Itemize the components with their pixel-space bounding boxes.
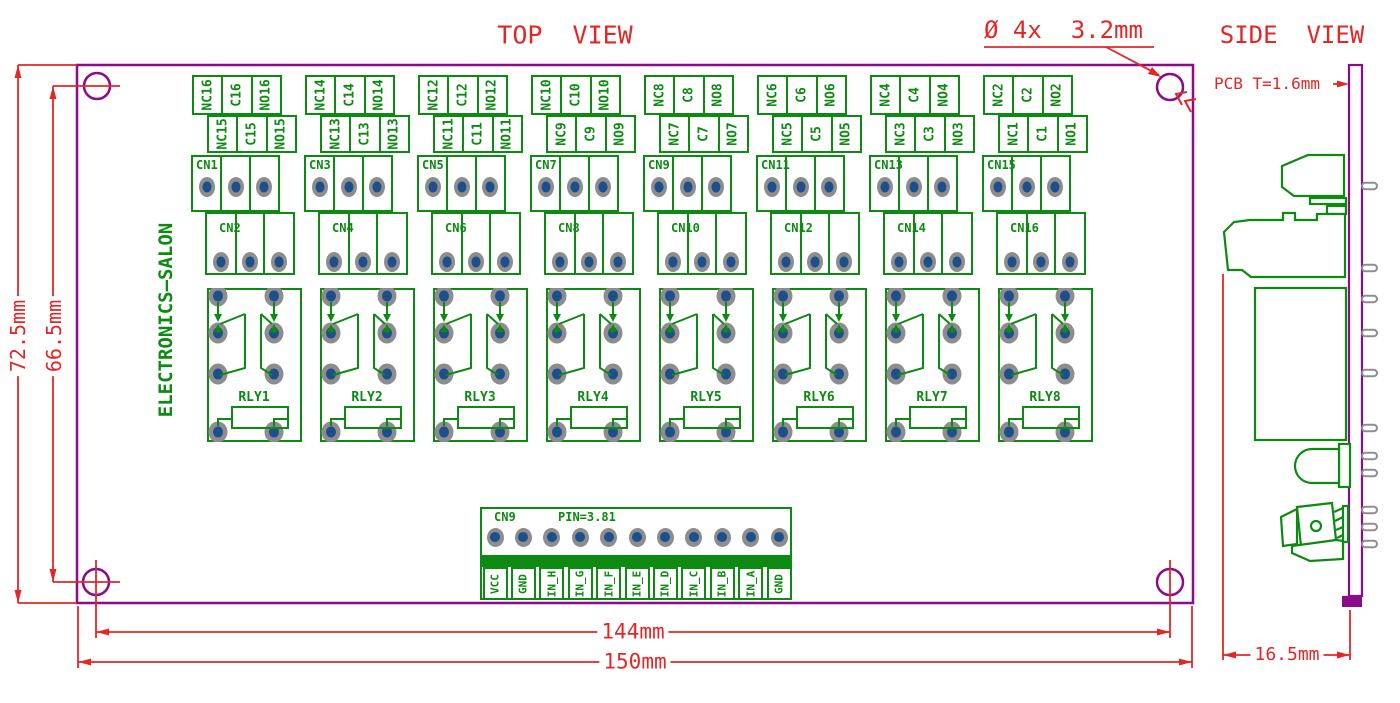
- connector-label: CN11: [761, 159, 790, 171]
- relay-label: RLY6: [803, 390, 834, 405]
- solder-pad: [581, 252, 597, 272]
- input-pin-cell: GND: [767, 567, 792, 600]
- terminal-cell: C1: [1027, 117, 1056, 151]
- pad-hole: [1022, 182, 1031, 193]
- terminal-label: NC11: [442, 118, 455, 149]
- solder-pad: [341, 177, 357, 197]
- terminal-cell: NO2: [1042, 77, 1071, 113]
- connector-block-lower: CN4: [318, 212, 408, 275]
- terminal-cell: NC1: [1000, 117, 1027, 151]
- terminal-label: NO4: [938, 83, 951, 106]
- dimension-side-depth: 16.5mm: [1250, 646, 1323, 664]
- solder-pad: [1019, 177, 1035, 197]
- terminal-label: NO8: [712, 83, 725, 106]
- input-pin-label: IN_E: [632, 570, 643, 597]
- terminal-label: C6: [795, 87, 808, 103]
- pad-hole: [547, 532, 557, 542]
- pad-hole: [500, 257, 509, 268]
- terminal-cell: NC13: [322, 117, 349, 151]
- terminal-cell: C11: [462, 117, 491, 151]
- pad-hole: [669, 257, 678, 268]
- connector-label: CN15: [987, 159, 1016, 171]
- input-pin-pad: [629, 528, 646, 547]
- terminal-cell: NO13: [379, 117, 408, 151]
- input-pin-label: VCC: [490, 574, 501, 594]
- cell-divider: [814, 157, 816, 210]
- terminal-row-lower: NC9C9NO9: [546, 115, 636, 153]
- solder-pad: [694, 252, 710, 272]
- side-terminal-bar: [1310, 198, 1346, 204]
- solder-pad: [213, 252, 229, 272]
- terminal-label: C5: [810, 126, 823, 142]
- terminal-cell: C8: [673, 77, 702, 113]
- terminal-cell: NC11: [435, 117, 462, 151]
- input-pin-pad: [600, 528, 617, 547]
- terminal-cell: NO7: [718, 117, 747, 151]
- terminal-label: NC2: [992, 83, 1005, 106]
- solder-pad: [949, 252, 965, 272]
- terminal-label: NC13: [329, 118, 342, 149]
- terminal-row-lower: NC15C15NO15: [207, 115, 297, 153]
- terminal-label: NO16: [260, 79, 273, 110]
- cell-divider: [475, 157, 477, 210]
- relay-footprint-svg: RLY8: [998, 288, 1093, 442]
- solder-pad: [1047, 177, 1063, 197]
- pad-hole: [909, 182, 918, 193]
- solder-pad: [482, 177, 498, 197]
- terminal-cell: NO1: [1057, 117, 1086, 151]
- input-pin-pad: [742, 528, 759, 547]
- terminal-label: C9: [584, 126, 597, 142]
- pad-hole: [768, 182, 777, 193]
- solder-pad: [256, 177, 272, 197]
- connector-label: CN14: [897, 222, 926, 234]
- terminal-label: NO9: [614, 122, 627, 145]
- cell-divider: [672, 157, 674, 210]
- input-pin-cell: IN_D: [653, 567, 678, 600]
- pad-hole: [604, 532, 614, 542]
- pad-hole: [472, 257, 481, 268]
- connector-block-upper: CN5: [417, 155, 506, 212]
- cell-divider: [362, 157, 364, 210]
- cell-divider: [263, 214, 265, 273]
- side-terminal-step: [1327, 206, 1346, 214]
- pad-hole: [598, 182, 607, 193]
- solder-pad: [439, 252, 455, 272]
- input-pin-label: IN_C: [688, 570, 699, 597]
- connector-block-upper: CN15: [982, 155, 1071, 212]
- cell-divider: [249, 157, 251, 210]
- terminal-cell: NC16: [194, 77, 221, 113]
- pad-hole: [839, 257, 848, 268]
- side-opto-latch: [1281, 509, 1297, 546]
- terminal-label: C2: [1021, 87, 1034, 103]
- terminal-cell: NC8: [646, 77, 673, 113]
- terminal-label: NC7: [668, 122, 681, 145]
- pad-hole: [231, 182, 240, 193]
- input-pin-label: IN_D: [660, 570, 671, 597]
- terminal-label: C7: [697, 126, 710, 142]
- input-pin-label: GND: [518, 574, 529, 594]
- relay-footprint-svg: RLY1: [207, 288, 302, 442]
- terminal-cell: C6: [786, 77, 815, 113]
- solder-pad: [793, 177, 809, 197]
- terminal-label: NC14: [314, 79, 327, 110]
- relay-footprint-svg: RLY2: [320, 288, 415, 442]
- pad-hole: [683, 182, 692, 193]
- input-pin-cell: IN_B: [710, 567, 735, 600]
- connector-block-lower: CN8: [544, 212, 634, 275]
- pad-hole: [259, 182, 268, 193]
- terminal-cell: NO5: [831, 117, 860, 151]
- cell-divider: [220, 157, 222, 210]
- relay-label: RLY1: [238, 390, 269, 405]
- terminal-cell: NC6: [759, 77, 786, 113]
- cell-divider: [446, 157, 448, 210]
- terminal-row-lower: NC13C13NO13: [320, 115, 410, 153]
- terminal-label: C15: [245, 122, 258, 145]
- terminal-cell: C7: [688, 117, 717, 151]
- terminal-cell: NC9: [548, 117, 575, 151]
- connector-block-upper: CN9: [643, 155, 732, 212]
- connector-block-lower: CN6: [431, 212, 521, 275]
- terminal-label: NO13: [388, 118, 401, 149]
- pad-hole: [518, 532, 528, 542]
- relay-label: RLY4: [577, 390, 608, 405]
- connector-block-upper: CN11: [756, 155, 845, 212]
- side-opto-pinbar: [1343, 506, 1348, 542]
- relay-footprint-svg: RLY7: [885, 288, 980, 442]
- pad-hole: [994, 182, 1003, 193]
- pad-hole: [570, 182, 579, 193]
- terminal-cell: NO4: [929, 77, 958, 113]
- solder-pad: [312, 177, 328, 197]
- pad-hole: [490, 532, 500, 542]
- relay-label: RLY3: [464, 390, 495, 405]
- connector-label: CN3: [309, 159, 331, 171]
- pad-hole: [660, 532, 670, 542]
- pad-hole: [924, 257, 933, 268]
- terminal-cell: NO11: [492, 117, 521, 151]
- connector-label: CN12: [784, 222, 813, 234]
- relay-footprint: RLY3: [433, 288, 528, 442]
- relay-footprint: RLY5: [659, 288, 754, 442]
- pad-hole: [203, 182, 212, 193]
- pad-hole: [443, 257, 452, 268]
- dimension-board-width: 150mm: [599, 652, 670, 673]
- pad-hole: [689, 532, 699, 542]
- input-pin-pad: [771, 528, 788, 547]
- pad-hole: [655, 182, 664, 193]
- pad-hole: [372, 182, 381, 193]
- cell-divider: [1040, 157, 1042, 210]
- terminal-row-lower: NC5C5NO5: [772, 115, 862, 153]
- terminal-cell: C5: [801, 117, 830, 151]
- solder-pad: [990, 177, 1006, 197]
- cell-divider: [701, 157, 703, 210]
- terminal-label: NO7: [727, 122, 740, 145]
- dimension-board-height: 72.5mm: [8, 296, 28, 376]
- input-pin-label: IN_B: [717, 570, 728, 597]
- terminal-cell: NO8: [703, 77, 732, 113]
- terminal-label: C14: [343, 83, 356, 106]
- terminal-cell: C9: [575, 117, 604, 151]
- relay-label: RLY8: [1029, 390, 1060, 405]
- cell-divider: [828, 214, 830, 273]
- pad-hole: [359, 257, 368, 268]
- pcb-thickness-note: PCB T=1.6mm: [1214, 76, 1320, 92]
- pcb-dimensional-drawing: TOP VIEW SIDE VIEW Ø 4x 3.2mm PCB T=1.6m…: [0, 0, 1400, 703]
- terminal-cell: NO12: [477, 77, 506, 113]
- solder-pad: [468, 252, 484, 272]
- pad-hole: [952, 257, 961, 268]
- pad-hole: [457, 182, 466, 193]
- pad-hole: [316, 182, 325, 193]
- side-led-flange: [1339, 444, 1350, 487]
- cell-divider: [927, 157, 929, 210]
- terminal-label: NC10: [540, 79, 553, 110]
- connector-block-lower: CN12: [770, 212, 860, 275]
- terminal-label: NO5: [840, 122, 853, 145]
- pad-hole: [717, 532, 727, 542]
- relay-footprint: RLY1: [207, 288, 302, 442]
- input-connector: CN9PIN=3.81VCCGNDIN_HIN_GIN_FIN_EIN_DIN_…: [480, 507, 792, 600]
- pad-hole: [585, 257, 594, 268]
- relay-label: RLY2: [351, 390, 382, 405]
- connector-label: CN16: [1010, 222, 1039, 234]
- terminal-row-lower: NC1C1NO1: [998, 115, 1088, 153]
- pad-hole: [824, 182, 833, 193]
- terminal-label: NO1: [1066, 122, 1079, 145]
- cell-divider: [588, 157, 590, 210]
- solder-pad: [355, 252, 371, 272]
- terminal-cell: NC7: [661, 117, 688, 151]
- solder-pad: [497, 252, 513, 272]
- pad-hole: [796, 182, 805, 193]
- pad-hole: [746, 532, 756, 542]
- terminal-label: NC12: [427, 79, 440, 110]
- terminal-label: NO10: [599, 79, 612, 110]
- relay-footprint-svg: RLY6: [772, 288, 867, 442]
- relay-label: RLY5: [690, 390, 721, 405]
- side-components: [1224, 155, 1350, 561]
- terminal-row-lower: NC7C7NO7: [659, 115, 749, 153]
- solder-pad: [708, 177, 724, 197]
- solder-pad: [821, 177, 837, 197]
- terminal-cell: NC14: [307, 77, 334, 113]
- terminal-label: C13: [358, 122, 371, 145]
- relay-footprint-svg: RLY4: [546, 288, 641, 442]
- connector-block-lower: CN14: [883, 212, 973, 275]
- cell-divider: [489, 214, 491, 273]
- terminal-label: C4: [908, 87, 921, 103]
- terminal-label: NO11: [501, 118, 514, 149]
- pad-hole: [1008, 257, 1017, 268]
- connector-label: CN2: [219, 222, 241, 234]
- connector-label: CN1: [196, 159, 218, 171]
- terminal-label: NO6: [825, 83, 838, 106]
- pad-hole: [330, 257, 339, 268]
- input-pin-pad: [515, 528, 532, 547]
- terminal-row-lower: NC11C11NO11: [433, 115, 523, 153]
- terminal-label: C8: [682, 87, 695, 103]
- pad-hole: [246, 257, 255, 268]
- connector-block-lower: CN10: [657, 212, 747, 275]
- solder-pad: [454, 177, 470, 197]
- terminal-row-upper: NC6C6NO6: [757, 75, 847, 115]
- pad-hole: [429, 182, 438, 193]
- pad-hole: [542, 182, 551, 193]
- terminal-label: NC5: [781, 122, 794, 145]
- terminal-row-upper: NC14C14NO14: [305, 75, 395, 115]
- solder-pad: [199, 177, 215, 197]
- solder-pad: [425, 177, 441, 197]
- input-pin-cell: IN_E: [625, 567, 650, 600]
- terminal-cell: NO16: [251, 77, 280, 113]
- terminal-label: NO12: [486, 79, 499, 110]
- input-pin-cell: GND: [511, 567, 536, 600]
- terminal-cell: NO3: [944, 117, 973, 151]
- input-connector-bar: [482, 555, 790, 567]
- terminal-cell: NO6: [816, 77, 845, 113]
- solder-pad: [836, 252, 852, 272]
- cell-divider: [559, 157, 561, 210]
- pad-hole: [632, 532, 642, 542]
- relay-footprint: RLY8: [998, 288, 1093, 442]
- relay-footprint: RLY7: [885, 288, 980, 442]
- terminal-label: C16: [230, 83, 243, 106]
- side-pcb-strip: [1349, 65, 1362, 596]
- terminal-cell: C2: [1012, 77, 1041, 113]
- terminal-cell: NC4: [872, 77, 899, 113]
- solder-pad: [651, 177, 667, 197]
- solder-pad: [807, 252, 823, 272]
- connector-block-lower: CN2: [205, 212, 295, 275]
- hole-diameter-note: Ø 4x 3.2mm: [984, 18, 1143, 42]
- connector-label: CN4: [332, 222, 354, 234]
- terminal-cell: NO15: [266, 117, 295, 151]
- terminal-cell: C14: [334, 77, 363, 113]
- terminal-cell: NC12: [420, 77, 447, 113]
- pad-hole: [217, 257, 226, 268]
- terminal-cell: C3: [914, 117, 943, 151]
- solder-pad: [552, 252, 568, 272]
- side-terminal-block-lower: [1224, 213, 1345, 277]
- solder-pad: [778, 252, 794, 272]
- terminal-label: NC1: [1007, 122, 1020, 145]
- connector-label: CN7: [535, 159, 557, 171]
- terminal-label: NC9: [555, 122, 568, 145]
- relay-footprint: RLY6: [772, 288, 867, 442]
- input-pin-cell: IN_A: [738, 567, 763, 600]
- relay-footprint-svg: RLY5: [659, 288, 754, 442]
- connector-block-upper: CN13: [869, 155, 958, 212]
- solder-pad: [242, 252, 258, 272]
- pad-hole: [698, 257, 707, 268]
- solder-pad: [384, 252, 400, 272]
- solder-pad: [877, 177, 893, 197]
- top-view-title: TOP VIEW: [497, 23, 632, 48]
- cell-divider: [602, 214, 604, 273]
- side-opto-hole: [1311, 521, 1321, 531]
- solder-pad: [610, 252, 626, 272]
- input-pin-cell: IN_F: [596, 567, 621, 600]
- pad-hole: [774, 532, 784, 542]
- terminal-label: NO2: [1051, 83, 1064, 106]
- input-pin-cell: IN_H: [539, 567, 564, 600]
- pad-hole: [726, 257, 735, 268]
- solder-pad: [326, 252, 342, 272]
- pad-hole: [274, 257, 283, 268]
- solder-pad: [1062, 252, 1078, 272]
- pad-hole: [387, 257, 396, 268]
- pad-hole: [575, 532, 585, 542]
- terminal-label: C11: [471, 122, 484, 145]
- dimension-hole-span-vertical: 66.5mm: [44, 296, 64, 376]
- solder-pad: [1033, 252, 1049, 272]
- pad-hole: [1050, 182, 1059, 193]
- terminal-cell: NO9: [605, 117, 634, 151]
- input-pin-label: IN_H: [546, 570, 557, 597]
- terminal-cell: C15: [236, 117, 265, 151]
- brand-silkscreen: ELECTRONICS—SALON: [155, 223, 177, 417]
- terminal-label: C3: [923, 126, 936, 142]
- solder-pad: [538, 177, 554, 197]
- side-led-dome: [1295, 449, 1339, 483]
- terminal-label: NO14: [373, 79, 386, 110]
- connector-block-upper: CN3: [304, 155, 393, 212]
- input-pin-label: IN_G: [575, 570, 586, 597]
- terminal-row-upper: NC16C16NO16: [192, 75, 282, 115]
- solder-pad: [723, 252, 739, 272]
- solder-pad: [891, 252, 907, 272]
- input-pin-pad: [572, 528, 589, 547]
- pad-hole: [711, 182, 720, 193]
- relay-footprint-svg: RLY3: [433, 288, 528, 442]
- terminal-label: NO3: [953, 122, 966, 145]
- terminal-label: NC4: [879, 83, 892, 106]
- cell-divider: [715, 214, 717, 273]
- pad-hole: [811, 257, 820, 268]
- pad-hole: [937, 182, 946, 193]
- solder-pad: [369, 177, 385, 197]
- cell-divider: [941, 214, 943, 273]
- solder-pad: [271, 252, 287, 272]
- solder-pad: [228, 177, 244, 197]
- cell-divider: [376, 214, 378, 273]
- terminal-cell: C13: [349, 117, 378, 151]
- input-pin-pad: [487, 528, 504, 547]
- side-terminal-block-upper: [1282, 155, 1344, 196]
- input-pin-cell: IN_G: [568, 567, 593, 600]
- pad-hole: [556, 257, 565, 268]
- terminal-row-upper: NC12C12NO12: [418, 75, 508, 115]
- mounting-hole-top-right: [1157, 74, 1183, 100]
- terminal-cell: NC3: [887, 117, 914, 151]
- terminal-label: NC16: [201, 79, 214, 110]
- connector-label: CN9: [648, 159, 670, 171]
- input-pin-pad: [685, 528, 702, 547]
- terminal-row-upper: NC2C2NO2: [983, 75, 1073, 115]
- terminal-label: C1: [1036, 126, 1049, 142]
- side-relay-body: [1255, 288, 1346, 440]
- input-pin-label: IN_A: [745, 570, 756, 597]
- terminal-cell: NC15: [209, 117, 236, 151]
- solder-pad: [595, 177, 611, 197]
- terminal-cell: NC10: [533, 77, 560, 113]
- pad-hole: [613, 257, 622, 268]
- solder-pad: [920, 252, 936, 272]
